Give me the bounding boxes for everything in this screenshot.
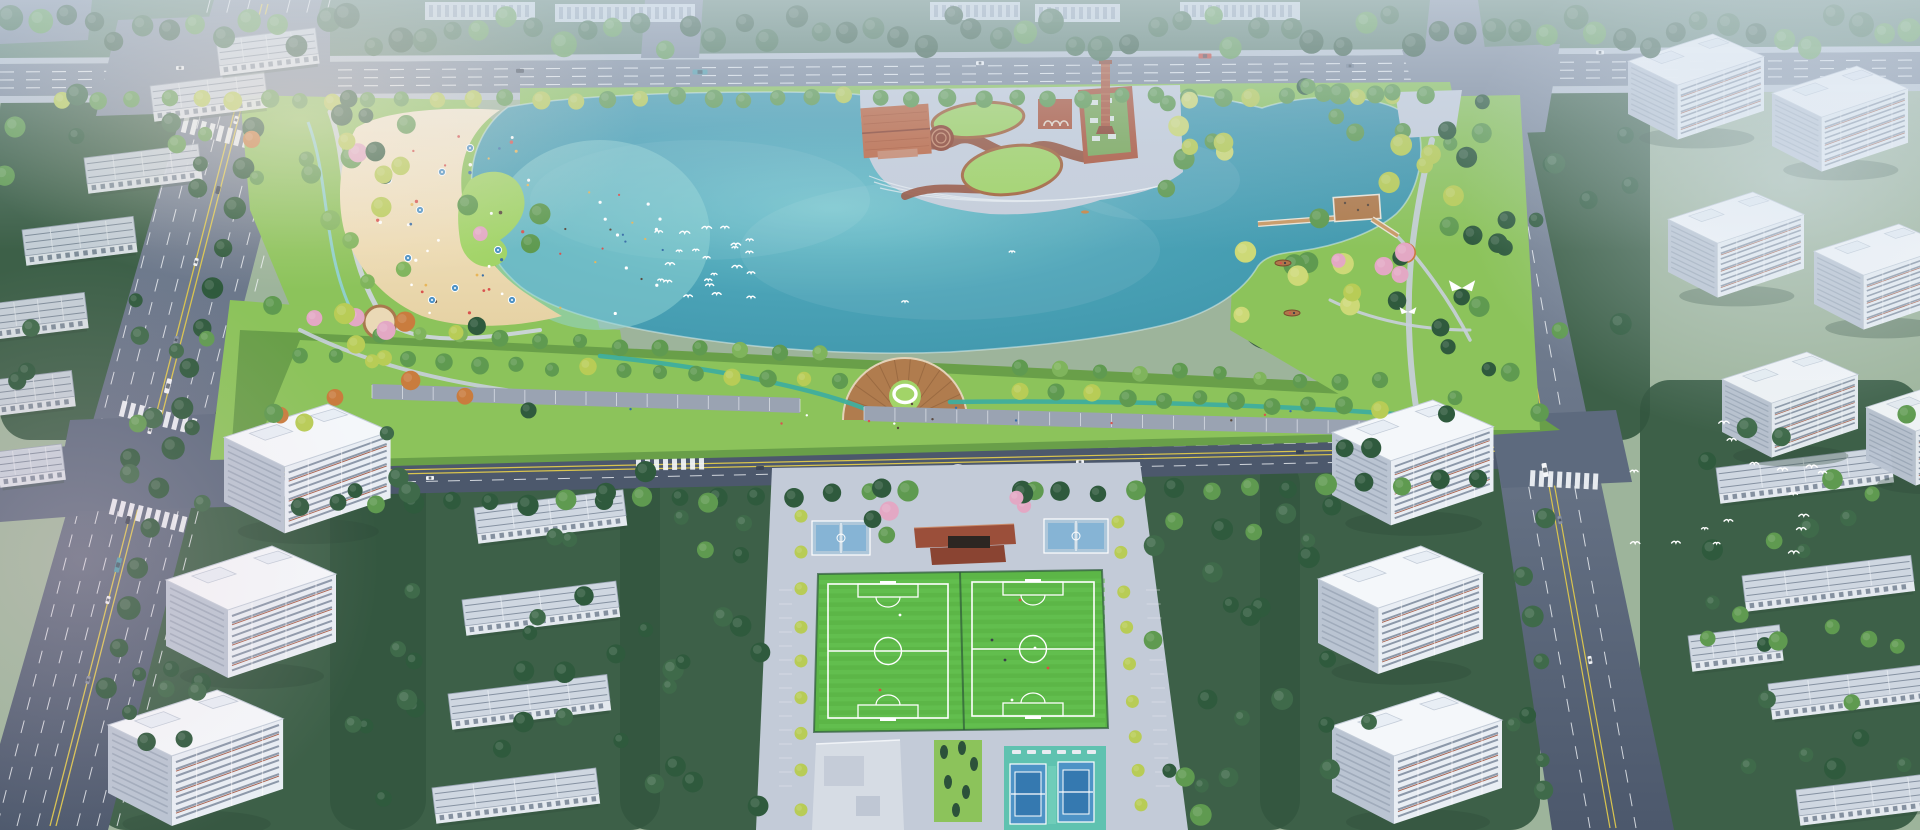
tree-highlight (1434, 321, 1442, 329)
tree-highlight (495, 742, 503, 750)
tree-highlight (337, 306, 347, 316)
tree-highlight (750, 798, 759, 807)
conifer-tree (940, 745, 948, 759)
slab-window (536, 711, 541, 717)
slab-window (1848, 811, 1853, 817)
tree-highlight (699, 543, 707, 551)
tree-highlight (796, 693, 802, 699)
tree-highlight (510, 359, 517, 366)
slab-window (573, 798, 578, 804)
slab-window (1830, 593, 1835, 599)
tree-highlight (774, 347, 781, 354)
tree-highlight (825, 486, 833, 494)
slab-window (572, 706, 577, 712)
tree-highlight (733, 618, 743, 628)
tree-highlight (1536, 783, 1545, 792)
slab-window (1713, 661, 1718, 667)
slab-window (481, 535, 486, 541)
tree-highlight (575, 336, 581, 342)
pedestrian (629, 408, 631, 410)
tree-highlight (1321, 653, 1329, 661)
slab-window (556, 800, 561, 806)
tree-highlight (1440, 408, 1448, 416)
slab-window (65, 252, 70, 258)
slab-window (1874, 699, 1879, 705)
beach-visitor (410, 284, 413, 287)
slab-window (1768, 489, 1773, 495)
slab-window (1793, 709, 1798, 715)
slab-window (1892, 585, 1897, 591)
slab-window (598, 703, 603, 709)
tree-highlight (382, 428, 388, 434)
tree-highlight (1014, 385, 1022, 393)
tree-highlight (308, 312, 315, 319)
tree-highlight (1266, 400, 1274, 408)
tree-highlight (1085, 386, 1093, 394)
tree-highlight (1243, 608, 1252, 617)
tree-highlight (378, 352, 385, 359)
tree-highlight (787, 490, 796, 499)
tree-highlight (609, 647, 618, 656)
tree-highlight (524, 627, 531, 634)
tree-highlight (1827, 621, 1834, 628)
service-roof-upper (824, 756, 864, 786)
tree-highlight (1229, 394, 1237, 402)
slab-window (1812, 595, 1817, 601)
tennis-center-path (1048, 766, 1056, 824)
tree-highlight (1295, 376, 1301, 382)
tree-highlight (1471, 472, 1479, 480)
tree-highlight (1136, 800, 1142, 806)
tree-highlight (1337, 399, 1345, 407)
tree-highlight (640, 624, 647, 631)
bird (703, 257, 710, 258)
car-south-road (756, 466, 764, 470)
tree-highlight (1281, 483, 1289, 491)
slab-window (499, 533, 504, 539)
tree-highlight (558, 492, 567, 501)
slab-window (466, 811, 471, 817)
crosswalk-bar (1557, 472, 1563, 488)
tree-highlight (484, 495, 492, 503)
swimmer (559, 307, 561, 309)
tree-highlight (726, 371, 734, 379)
tree-highlight (1364, 440, 1373, 449)
tree-highlight (1395, 480, 1403, 488)
slab-window (1758, 602, 1763, 608)
beach-visitor (482, 289, 485, 292)
slab-window (1785, 598, 1790, 604)
beach-visitor (468, 311, 471, 314)
beach-visitor (421, 290, 424, 293)
tree-highlight (654, 342, 662, 350)
slab-window (547, 802, 552, 808)
tree-highlight (1050, 386, 1058, 394)
tree-highlight (531, 611, 538, 618)
conifer-tree (970, 757, 978, 771)
tree-highlight (1236, 712, 1243, 719)
crosswalk-bar (1593, 473, 1599, 489)
slab-window (1812, 816, 1817, 822)
beach-visitor (476, 274, 479, 277)
tree-highlight (1014, 362, 1021, 369)
tree-highlight (402, 353, 409, 360)
slab-window (1857, 590, 1862, 596)
boater (1284, 262, 1286, 264)
slab-window (464, 720, 469, 726)
slab-window (1866, 809, 1871, 815)
conifer-tree (962, 785, 970, 799)
tree-highlight (814, 347, 821, 354)
tree-highlight (1146, 538, 1155, 547)
tree-highlight (1516, 569, 1525, 578)
tree-highlight (1768, 535, 1776, 543)
slab-window (606, 519, 611, 525)
tree-highlight (450, 327, 457, 334)
slab-window (526, 529, 531, 535)
tree-highlight (377, 792, 385, 800)
football-player (991, 639, 994, 642)
slab-window (455, 721, 460, 727)
tree-highlight (1325, 499, 1334, 508)
tree-highlight (1771, 634, 1780, 643)
car-windshield (1543, 467, 1548, 472)
tree-highlight (1278, 506, 1287, 515)
tree-highlight (1205, 565, 1214, 574)
car-south-road (1296, 450, 1304, 454)
slab-window (1767, 654, 1772, 660)
tree-highlight (1345, 286, 1353, 294)
slab-window (1893, 806, 1898, 812)
slab-window (493, 808, 498, 814)
slab-window (475, 810, 480, 816)
slab-window (1848, 479, 1853, 485)
tree-highlight (716, 610, 725, 619)
slab-window (29, 257, 34, 263)
tree-highlight (1521, 709, 1529, 717)
tree-highlight (1798, 546, 1804, 552)
rowboat (1284, 310, 1300, 316)
slab-window (1759, 490, 1764, 496)
tree-highlight (1700, 454, 1708, 462)
slab-window (562, 525, 567, 531)
slab-window (1839, 812, 1844, 818)
tree-highlight (1456, 291, 1463, 298)
tree-highlight (796, 765, 802, 771)
tree-highlight (379, 323, 388, 332)
pedestrian (1230, 419, 1232, 421)
tree-highlight (1095, 366, 1101, 372)
tree-highlight (1146, 633, 1154, 641)
tree-highlight (1483, 364, 1489, 370)
tree-highlight (796, 547, 802, 553)
tree-highlight (1801, 749, 1808, 756)
bird (711, 273, 717, 274)
tree-highlight (796, 805, 802, 811)
beach-umbrella-top (511, 299, 513, 301)
slab-window (74, 251, 79, 257)
boater (1289, 312, 1291, 314)
tree-highlight (1377, 259, 1385, 267)
slab-window (1802, 707, 1807, 713)
slab-window (1784, 710, 1789, 716)
tree-highlight (1122, 622, 1128, 628)
tree-highlight (1054, 363, 1061, 370)
court-half (1048, 523, 1074, 549)
tree-highlight (674, 491, 682, 499)
tree-highlight (1125, 659, 1131, 665)
pedestrian (780, 422, 782, 424)
tree-highlight (1318, 476, 1328, 486)
tree-highlight (668, 759, 677, 768)
tree-highlight (1174, 365, 1181, 372)
pedestrian (1110, 422, 1112, 424)
basketball-court-east (1044, 519, 1108, 553)
slab-window (482, 717, 487, 723)
slab-window (603, 610, 608, 616)
tree-highlight (391, 470, 400, 479)
slab-window (520, 805, 525, 811)
slab-window (1838, 703, 1843, 709)
tree-highlight (1363, 716, 1370, 723)
slab-window (439, 815, 444, 821)
slab-window (568, 615, 573, 621)
tree-highlight (761, 372, 769, 380)
slab-window (508, 531, 513, 537)
car-windshield (1299, 451, 1302, 454)
tree-highlight (1130, 732, 1136, 738)
slab-window (1900, 695, 1905, 701)
tree-highlight (753, 645, 762, 654)
tree-highlight (614, 342, 621, 349)
tree-highlight (1236, 309, 1243, 316)
football-player (1047, 667, 1050, 670)
sun-lounger (1012, 750, 1021, 754)
crosswalk-bar (1584, 473, 1590, 489)
bird (1009, 251, 1015, 252)
tree-highlight (347, 718, 355, 726)
tree-highlight (1433, 472, 1442, 481)
bird (747, 296, 755, 298)
tree-highlight (577, 589, 586, 598)
tree-highlight (1178, 770, 1187, 779)
tree-highlight (406, 585, 413, 592)
slab-window (1731, 658, 1736, 664)
tree-highlight (1255, 373, 1261, 379)
tree-highlight (1533, 406, 1541, 414)
tree-highlight (1221, 770, 1230, 779)
tree-highlight (1827, 760, 1837, 770)
slab-window (545, 710, 550, 716)
service-roof-cube (856, 796, 880, 816)
tree-highlight (1525, 608, 1535, 618)
slab-window (1803, 596, 1808, 602)
slab-window (47, 255, 52, 261)
tree-highlight (1303, 535, 1309, 541)
slab-window (1820, 705, 1825, 711)
slab-window (538, 803, 543, 809)
tree-highlight (685, 774, 694, 783)
tree-highlight (398, 314, 407, 323)
slab-window (1750, 491, 1755, 497)
slab-window (38, 256, 43, 262)
tree-highlight (796, 656, 802, 662)
football-pitches (814, 570, 1108, 732)
tree-highlight (403, 373, 412, 382)
slab-window (580, 523, 585, 529)
slab-window (487, 625, 492, 631)
tree-highlight (1535, 656, 1542, 663)
tree-highlight (1119, 587, 1125, 593)
tree-highlight (547, 364, 553, 370)
tree-highlight (1442, 341, 1449, 348)
bird (746, 251, 753, 252)
slab-window (1786, 487, 1791, 493)
tree-highlight (1707, 597, 1713, 603)
tree-highlight (367, 356, 373, 362)
tree-highlight (677, 656, 684, 663)
slab-window (1874, 587, 1879, 593)
tree-highlight (1200, 692, 1209, 701)
tree-highlight (1215, 368, 1221, 374)
tree-highlight (1128, 697, 1134, 703)
slab-window (514, 621, 519, 627)
beach-visitor (488, 265, 491, 268)
goal (1025, 579, 1041, 582)
sun-lounger (1057, 750, 1066, 754)
pavilion-opening (948, 536, 990, 548)
tree-highlight (882, 504, 891, 513)
slab-window (535, 528, 540, 534)
slab-window (529, 804, 534, 810)
tree-highlight (738, 517, 745, 524)
beach-umbrella-top (431, 299, 433, 301)
bird (902, 301, 908, 302)
slab-window (1821, 815, 1826, 821)
tree-highlight (796, 511, 802, 517)
tree-highlight (834, 375, 841, 382)
tree-highlight (1302, 399, 1309, 406)
slab-window (491, 716, 496, 722)
pedestrian (893, 422, 895, 424)
tree-highlight (1334, 376, 1342, 384)
bird (747, 272, 755, 273)
tree-highlight (634, 489, 643, 498)
slab-window (1866, 588, 1871, 594)
tree-highlight (1322, 762, 1331, 771)
swimmer (559, 253, 561, 255)
slab-window (1775, 711, 1780, 717)
tree-highlight (1846, 696, 1853, 703)
tree-highlight (399, 692, 408, 701)
slab-window (56, 253, 61, 259)
slab-window (473, 719, 478, 725)
bird (1713, 542, 1720, 543)
slab-window (1857, 478, 1862, 484)
sun-lounger (1042, 750, 1051, 754)
goal (1025, 716, 1041, 719)
slab-window (1741, 493, 1746, 499)
tree-highlight (1129, 483, 1138, 492)
tree-highlight (735, 549, 742, 556)
slab-window (1883, 586, 1888, 592)
goal (880, 581, 896, 584)
tree-highlight (1449, 392, 1456, 399)
tree-highlight (1338, 442, 1346, 450)
tree-highlight (1743, 760, 1750, 767)
beach-visitor (500, 258, 503, 261)
slab-window (502, 807, 507, 813)
conifer-tree (952, 803, 960, 817)
bird (664, 280, 672, 282)
slab-window (1695, 663, 1700, 669)
pedestrian (1015, 419, 1017, 421)
tree-highlight (665, 662, 675, 672)
tree-highlight (1225, 599, 1232, 606)
tree-highlight (1158, 395, 1165, 402)
slab-window (1723, 495, 1728, 501)
slab-window (1883, 698, 1888, 704)
pedestrian (806, 414, 808, 416)
tree-highlight (749, 490, 757, 498)
tree-highlight (1854, 731, 1862, 739)
slab-window (1811, 706, 1816, 712)
swan (655, 284, 658, 287)
basketball-court-west (812, 521, 870, 555)
car-windshield (759, 467, 762, 470)
tree-highlight (1760, 693, 1768, 701)
sports-park (756, 462, 1188, 830)
tree-highlight (880, 529, 888, 537)
crosswalk-bar (1575, 472, 1581, 488)
slab-window (500, 715, 505, 721)
crosswalk-bar (1566, 472, 1572, 488)
slab-window (559, 616, 564, 622)
slab-window (469, 627, 474, 633)
conifer-tree (958, 741, 966, 755)
slab-window (517, 530, 522, 536)
tree-highlight (1863, 633, 1871, 641)
deck-visitor (897, 427, 899, 429)
slab-window (448, 814, 453, 820)
slab-window (1758, 655, 1763, 661)
tree-highlight (473, 359, 481, 367)
football-player (1011, 699, 1014, 702)
slab-window (1722, 659, 1727, 665)
slab-window (505, 622, 510, 628)
slab-window (1839, 592, 1844, 598)
slab-window (509, 714, 514, 720)
slab-window (1776, 599, 1781, 605)
court-half (1078, 523, 1104, 549)
slab-window (1813, 484, 1818, 490)
car-windshield (429, 477, 432, 480)
slab-window (564, 799, 569, 805)
tree-highlight (520, 497, 530, 507)
tree-highlight (445, 494, 453, 502)
slab-window (1767, 601, 1772, 607)
tree-highlight (1011, 492, 1017, 498)
bird (1702, 528, 1708, 529)
tree-highlight (1538, 511, 1547, 520)
sun-lounger (1087, 750, 1096, 754)
beach-visitor (428, 312, 431, 315)
slab-window (490, 534, 495, 540)
beach-umbrella-top (454, 287, 456, 289)
tree-highlight (874, 481, 883, 490)
football-player (1004, 659, 1007, 662)
aerial-rendering-canvas (0, 0, 1920, 830)
